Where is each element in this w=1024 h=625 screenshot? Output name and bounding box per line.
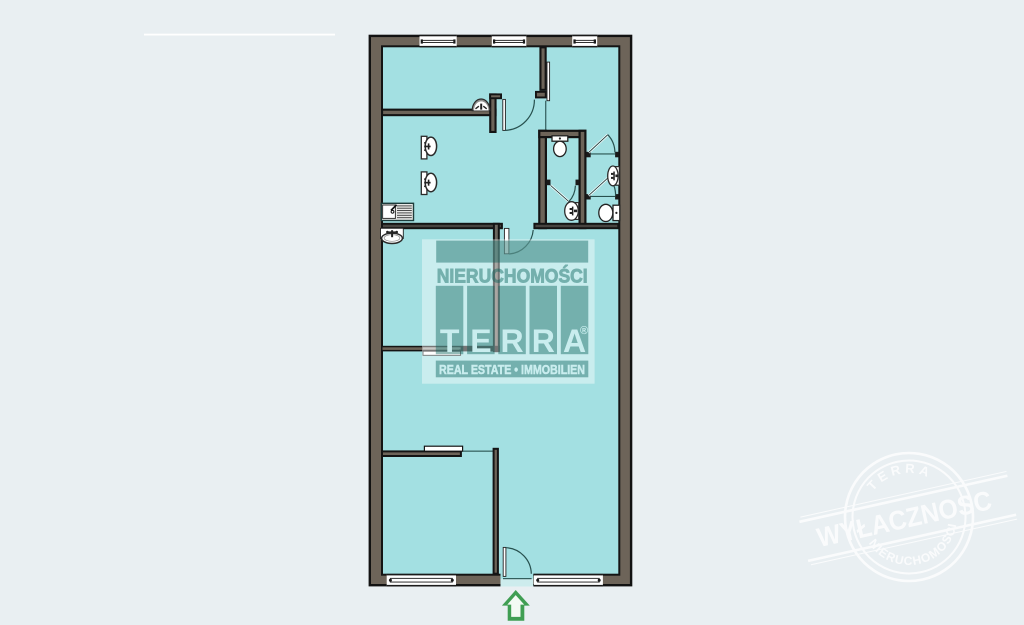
svg-text:R: R	[532, 323, 555, 359]
svg-text:®: ®	[580, 325, 588, 337]
svg-text:T: T	[440, 323, 460, 359]
svg-text:NIERUCHOMOŚCI: NIERUCHOMOŚCI	[437, 266, 588, 288]
svg-text:E: E	[470, 323, 491, 359]
svg-text:REAL ESTATE • IMMOBILIEN: REAL ESTATE • IMMOBILIEN	[439, 363, 585, 377]
svg-text:R: R	[501, 323, 524, 359]
